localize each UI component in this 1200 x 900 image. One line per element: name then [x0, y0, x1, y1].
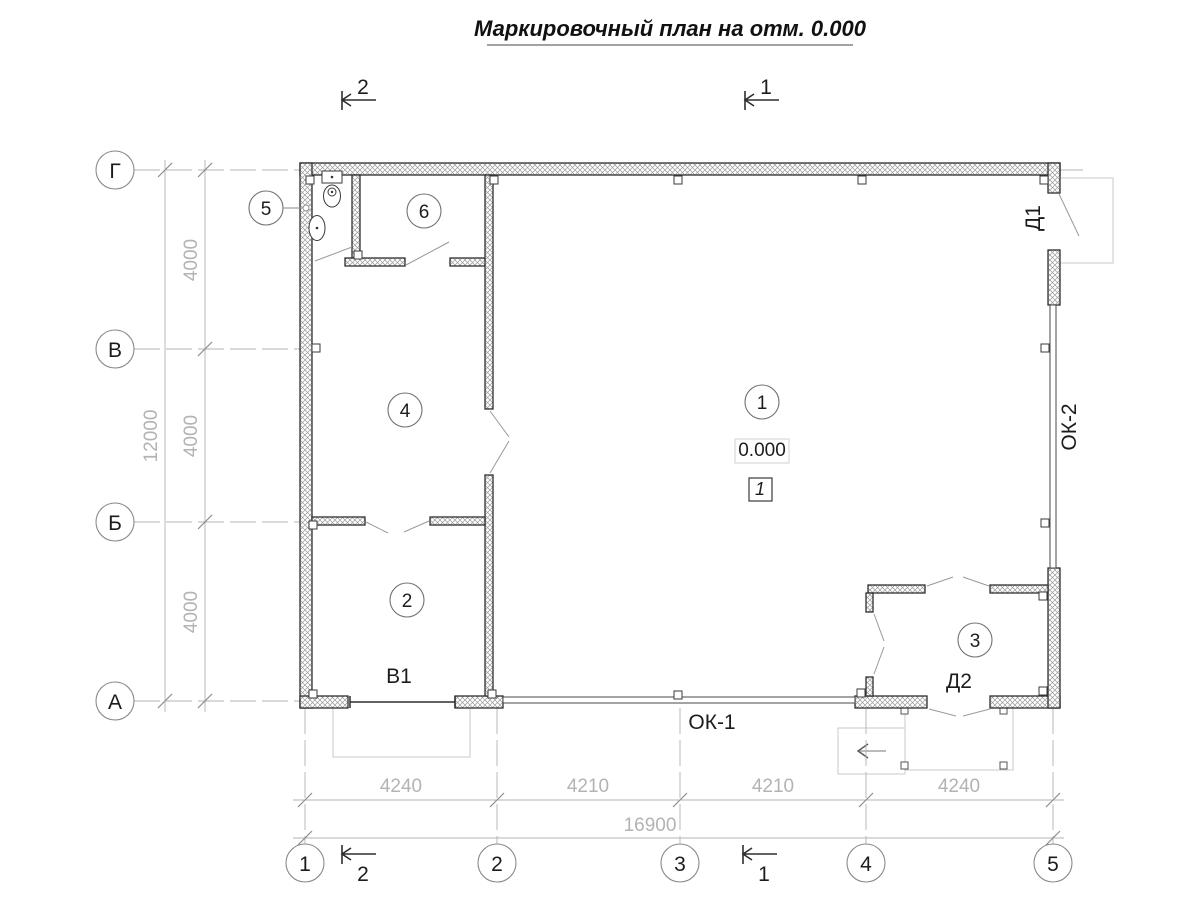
porch-post: [1000, 762, 1007, 769]
dimension-bottom-total: 16900: [293, 815, 1064, 845]
axis-bubble-row-g: Г: [96, 151, 134, 189]
dimension-left-total: 12000: [141, 160, 172, 712]
dim-label: 4000: [181, 591, 202, 633]
section-arrow: [743, 845, 777, 864]
wall-marker: [490, 176, 498, 184]
wall-marker: [354, 251, 362, 259]
wall-exterior-bottom-3: [855, 696, 927, 708]
door-swing-room2-b: [404, 521, 429, 532]
sink-icon: [309, 216, 325, 241]
room-tag-1: 1: [745, 385, 779, 419]
axis-label: В: [108, 339, 122, 362]
door-swing-room6: [406, 242, 449, 265]
dim-label: 4210: [752, 776, 794, 797]
floor-type-value: 1: [755, 479, 765, 499]
room-number: 3: [970, 631, 981, 652]
wall-marker: [858, 176, 866, 184]
room-number: 2: [402, 591, 413, 612]
walls: [300, 163, 1060, 708]
wall-exterior-bottom-1: [300, 696, 348, 708]
axis-lines: [134, 170, 1083, 844]
axis-label: Б: [108, 512, 122, 535]
axis-label: 4: [860, 853, 872, 876]
dim-label: 4240: [380, 776, 422, 797]
wall-marker: [309, 690, 317, 698]
junction-markers: [306, 176, 1049, 699]
door-d2-label: Д2: [946, 670, 972, 693]
gate-v1: [350, 696, 455, 708]
toilet-icon: [322, 171, 342, 207]
porch-post: [901, 762, 908, 769]
section-number: 1: [758, 863, 770, 886]
wall-marker: [1041, 519, 1049, 527]
porches: [333, 178, 1113, 774]
axis-bubbles-rows: Г В Б А: [96, 151, 134, 720]
wall-marker: [1041, 344, 1049, 352]
door-d1-porch-outline: [1060, 178, 1113, 263]
wall-marker: [1040, 176, 1048, 184]
section-marks: 2 1 2 1: [342, 76, 779, 886]
wall-partition-wc: [352, 175, 360, 263]
door-d1-label: Д1: [1022, 205, 1045, 231]
window-ok2-band: [1050, 305, 1056, 568]
door-d2-porch-outline: [905, 708, 1013, 770]
room-tag-4: 4: [388, 393, 422, 427]
wall-partition-under-room6-b: [450, 258, 487, 266]
floor-plan-drawing: Маркировочный план на отм. 0.000: [0, 0, 1200, 900]
door-swing-tambour-left-a: [874, 614, 884, 641]
axis-bubbles-cols: 1 2 3 4 5: [286, 844, 1072, 882]
axis-label: 2: [491, 853, 503, 876]
door-swing-room4-b: [490, 441, 509, 473]
wall-marker: [1039, 592, 1047, 600]
room-tag-3: 3: [958, 623, 992, 657]
section-mark-1-bottom: 1: [743, 845, 777, 886]
section-number: 2: [357, 863, 369, 886]
gate-v1-label: В1: [386, 665, 412, 688]
dimension-left-segments: 4000 4000 4000: [181, 160, 212, 712]
wall-partition-main-lower: [485, 475, 493, 696]
axis-label: Г: [109, 160, 120, 183]
axis-label: 5: [1047, 853, 1059, 876]
axis-bubble-col-5: 5: [1034, 844, 1072, 882]
door-swing-tambour-top-a: [927, 577, 953, 586]
axis-label: 1: [299, 853, 311, 876]
entrance-arrow-icon: [858, 744, 886, 758]
room-number: 6: [419, 202, 430, 223]
gate-ramp-outline: [333, 708, 470, 757]
axis-bubble-row-b: Б: [96, 503, 134, 541]
section-mark-2-bottom: 2: [342, 845, 376, 886]
room-tag-2: 2: [390, 583, 424, 617]
elevation-mark: 0.000: [735, 439, 789, 463]
dimension-bottom-segments: 4240 4210 4210 4240: [293, 776, 1064, 807]
wall-marker: [312, 344, 320, 352]
axis-bubble-col-1: 1: [286, 844, 324, 882]
room-number: 1: [757, 393, 768, 414]
axis-label: 3: [674, 853, 686, 876]
wall-exterior-right-lower: [1048, 568, 1060, 708]
wall-tambour-stub-upper: [866, 593, 873, 612]
section-number: 2: [357, 76, 369, 99]
section-number: 1: [760, 76, 772, 99]
wall-partition-main-upper: [485, 175, 493, 409]
wall-marker: [306, 176, 314, 184]
toilet-tank-dot: [331, 176, 334, 179]
door-swing-tambour-top-b: [963, 577, 989, 586]
door-swing-d2-a: [929, 709, 956, 716]
wall-exterior-right-stub-1: [1048, 163, 1060, 193]
floor-plan-canvas: Маркировочный план на отм. 0.000: [0, 0, 1200, 900]
axis-bubble-row-v: В: [96, 330, 134, 368]
room-number: 4: [400, 401, 411, 422]
drawing-title: Маркировочный план на отм. 0.000: [474, 16, 867, 45]
section-mark-2-top: 2: [342, 76, 376, 110]
page-title: Маркировочный план на отм. 0.000: [474, 16, 867, 41]
window-ok1-label: ОК-1: [688, 711, 735, 734]
wall-tambour-top-left: [868, 585, 925, 593]
wall-tambour-stub-lower: [866, 677, 873, 696]
door-swing-d1: [1059, 194, 1079, 236]
wall-exterior-top: [300, 163, 1060, 175]
wall-marker: [488, 690, 496, 698]
window-ok2-label: ОК-2: [1058, 403, 1081, 450]
dim-label: 4210: [567, 776, 609, 797]
dim-label: 4000: [181, 415, 202, 457]
wall-marker: [857, 689, 865, 697]
dim-label: 4000: [181, 239, 202, 281]
door-swing-room2-a: [366, 522, 388, 533]
axis-bubble-row-a: А: [96, 682, 134, 720]
room-number: 5: [261, 199, 272, 220]
wall-partition-b-right: [430, 517, 485, 525]
room-tag-leader-dot: [303, 205, 309, 211]
axis-label: А: [108, 691, 122, 714]
wall-marker: [1039, 687, 1047, 695]
wall-marker: [674, 176, 682, 184]
elevation-value: 0.000: [738, 440, 786, 461]
floor-type-mark: 1: [749, 478, 772, 501]
dim-label: 4240: [938, 776, 980, 797]
sink-drain-dot: [316, 227, 319, 230]
axis-bubble-col-4: 4: [847, 844, 885, 882]
room-tag-6: 6: [407, 194, 441, 228]
door-swing-room4-a: [490, 411, 509, 437]
wall-marker: [674, 691, 682, 699]
wall-partition-b-left: [312, 517, 365, 525]
dim-label-total: 16900: [624, 815, 677, 836]
section-mark-1-top: 1: [745, 76, 779, 110]
wall-exterior-left: [300, 163, 312, 708]
wall-marker: [309, 521, 317, 529]
door-swing-tambour-left-b: [874, 647, 884, 674]
axis-bubble-col-2: 2: [478, 844, 516, 882]
door-swing-d2-b: [963, 709, 990, 716]
toilet-drain-dot: [331, 191, 333, 193]
section-arrow: [342, 845, 376, 864]
axis-bubble-col-3: 3: [661, 844, 699, 882]
dim-label-total: 12000: [141, 410, 162, 463]
wall-exterior-right-stub-2: [1048, 250, 1060, 305]
